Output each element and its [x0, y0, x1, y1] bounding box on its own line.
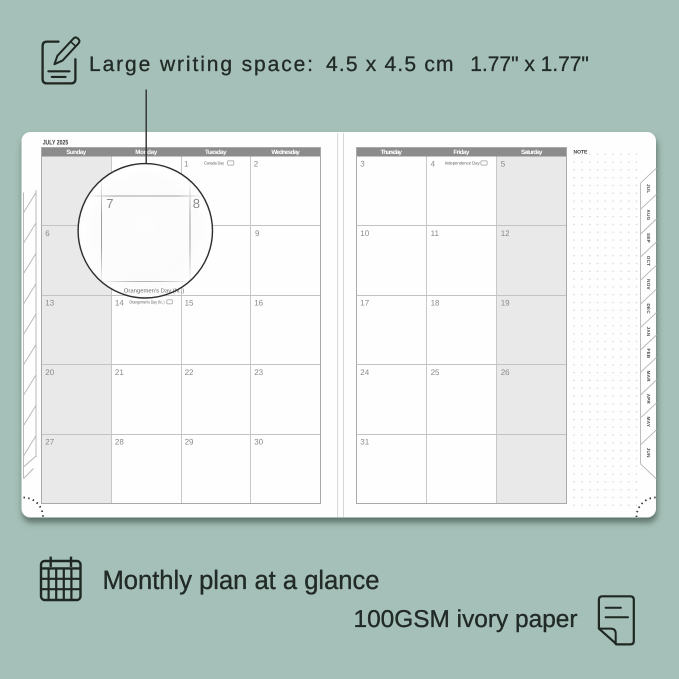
svg-text:17: 17	[360, 299, 369, 308]
svg-text:1.77" x 1.77": 1.77" x 1.77"	[470, 53, 589, 76]
svg-text:27: 27	[45, 437, 54, 446]
svg-text:DEC: DEC	[646, 303, 651, 314]
svg-text:Orangemen's Day (N..): Orangemen's Day (N..)	[130, 300, 165, 305]
svg-text:9: 9	[255, 229, 260, 238]
svg-text:21: 21	[115, 368, 124, 377]
svg-text:6: 6	[45, 229, 50, 238]
svg-text:19: 19	[501, 299, 510, 308]
svg-text:MAR: MAR	[646, 371, 651, 383]
svg-text:Tuesday: Tuesday	[205, 149, 227, 156]
svg-text:15: 15	[185, 299, 194, 308]
svg-text:100GSM ivory paper: 100GSM ivory paper	[354, 606, 578, 633]
svg-text:OCT: OCT	[646, 256, 651, 266]
svg-text:SEP: SEP	[646, 233, 651, 243]
svg-text:12: 12	[501, 229, 510, 238]
svg-text:Saturday: Saturday	[521, 149, 543, 156]
svg-text:Thursday: Thursday	[380, 149, 402, 156]
svg-text:23: 23	[254, 368, 263, 377]
svg-text:11: 11	[431, 229, 440, 238]
svg-text:JUL: JUL	[646, 184, 651, 193]
svg-text:26: 26	[501, 368, 510, 377]
svg-text:24: 24	[360, 368, 369, 377]
svg-text:Canada Day: Canada Day	[204, 160, 225, 165]
svg-text:Independence Day: Independence Day	[445, 160, 481, 165]
svg-text:Monthly plan at a glance: Monthly plan at a glance	[103, 565, 380, 595]
svg-text:FEB: FEB	[646, 349, 651, 359]
svg-text:2: 2	[254, 159, 259, 168]
svg-text:4.5 x 4.5 cm: 4.5 x 4.5 cm	[326, 53, 454, 76]
svg-text:Sunday: Sunday	[66, 149, 87, 156]
svg-text:Wednesday: Wednesday	[271, 149, 300, 156]
svg-text:JULY 2025: JULY 2025	[43, 139, 69, 146]
svg-text:NOV: NOV	[646, 279, 651, 290]
svg-text:28: 28	[115, 437, 124, 446]
svg-text:8: 8	[193, 196, 200, 211]
svg-text:JAN: JAN	[646, 327, 651, 337]
svg-text:29: 29	[185, 437, 194, 446]
svg-text:18: 18	[431, 299, 440, 308]
svg-text:13: 13	[45, 299, 54, 308]
svg-text:AUG: AUG	[646, 210, 651, 221]
svg-text:MAY: MAY	[646, 417, 651, 428]
svg-text:14: 14	[115, 299, 124, 308]
svg-text:7: 7	[106, 196, 113, 211]
svg-text:4: 4	[431, 159, 436, 168]
svg-text:30: 30	[254, 437, 263, 446]
svg-text:Friday: Friday	[453, 149, 470, 156]
svg-text:APR: APR	[646, 394, 651, 405]
svg-text:1: 1	[184, 159, 189, 168]
svg-text:31: 31	[360, 437, 369, 446]
svg-text:3: 3	[360, 159, 365, 168]
svg-text:JUN: JUN	[646, 448, 651, 458]
svg-text:22: 22	[185, 368, 194, 377]
svg-text:10: 10	[360, 229, 369, 238]
svg-text:20: 20	[45, 368, 54, 377]
svg-text:16: 16	[254, 299, 263, 308]
svg-text:5: 5	[501, 159, 506, 168]
svg-text:25: 25	[431, 368, 440, 377]
